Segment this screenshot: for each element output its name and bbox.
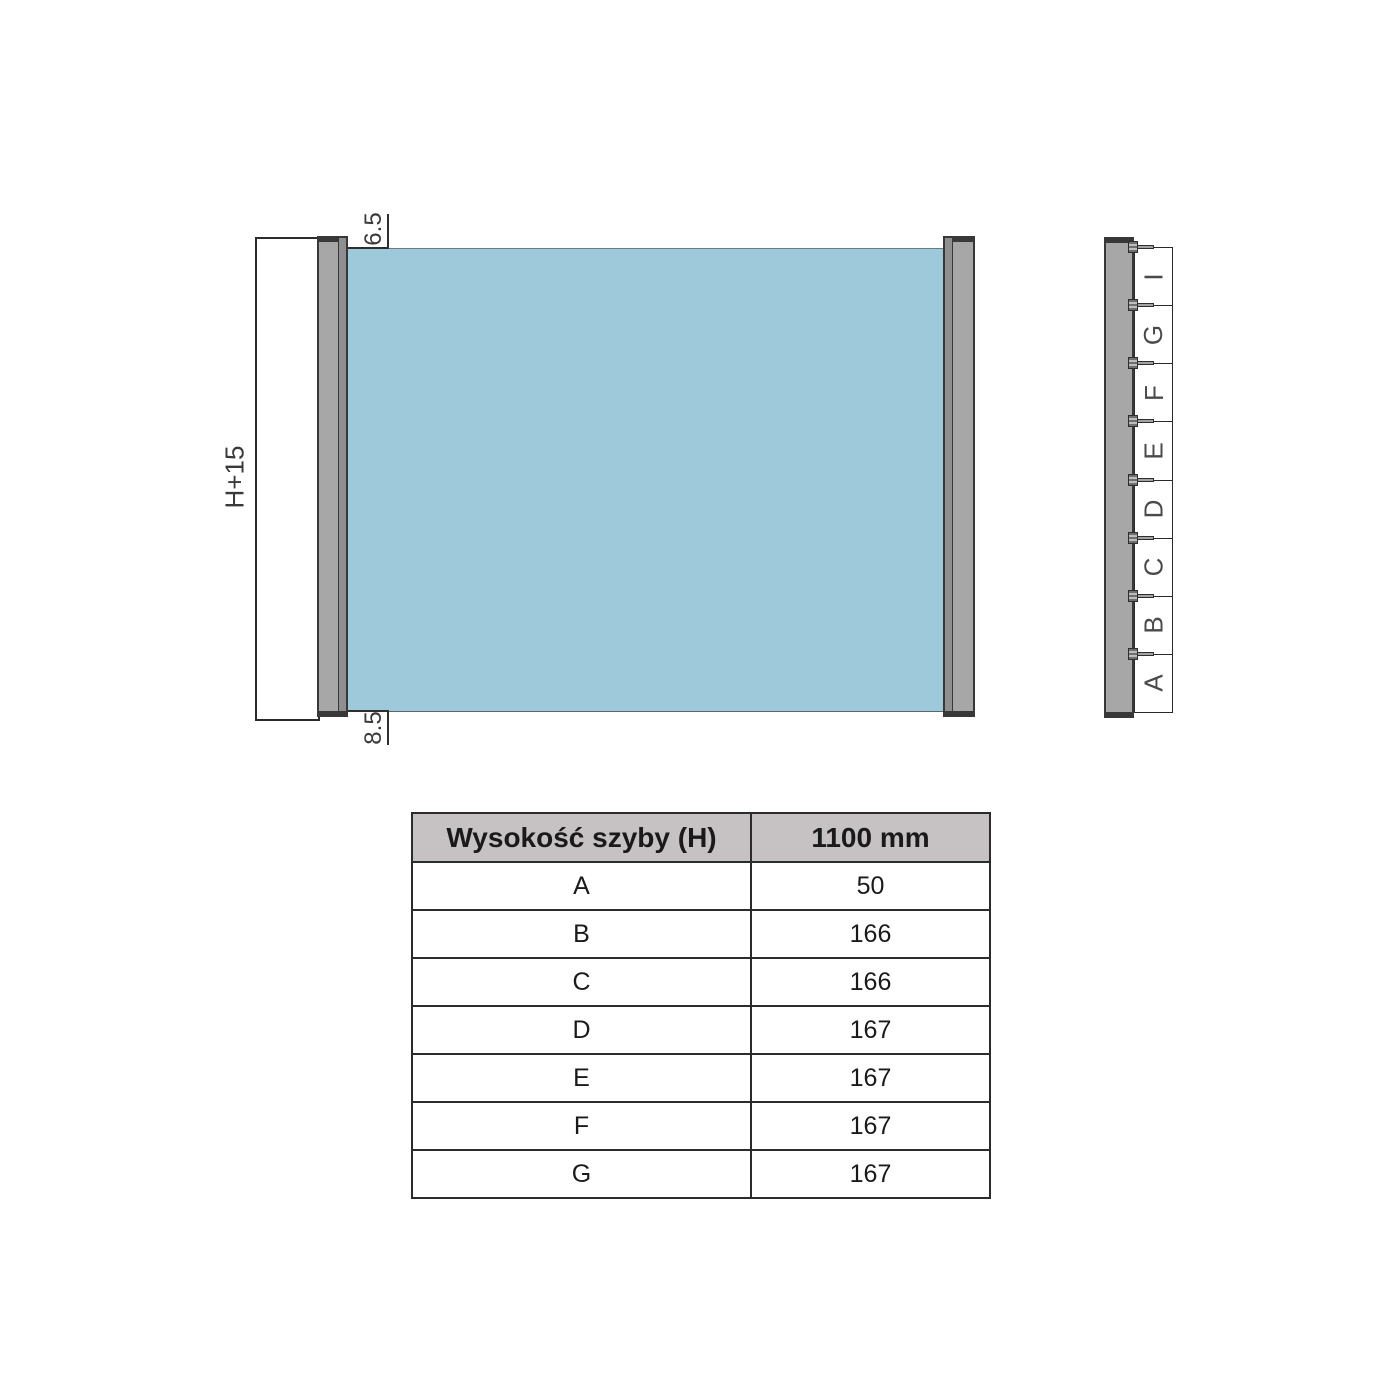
segment-label-cell: A (412, 862, 751, 910)
side-segment: B (1135, 597, 1172, 655)
table-row: A 50 (412, 862, 990, 910)
table-row: C 166 (412, 958, 990, 1006)
screw-icon (1128, 590, 1158, 602)
side-segment: A (1135, 655, 1172, 712)
segment-label-cell: B (412, 910, 751, 958)
side-segment: E (1135, 422, 1172, 480)
table-header-value: 1100 mm (751, 813, 990, 862)
side-segment: I (1135, 248, 1172, 306)
segment-label: E (1141, 442, 1167, 459)
segment-label: G (1140, 325, 1166, 345)
table-row: E 167 (412, 1054, 990, 1102)
profile-gasket-strip (945, 238, 953, 715)
screw-icon (1128, 648, 1158, 660)
side-segment: C (1135, 539, 1172, 597)
screw-icon (1128, 474, 1158, 486)
top-gap-dimension-label: 6.5 (360, 212, 388, 245)
segment-value-cell: 167 (751, 1150, 990, 1198)
screw-icon (1128, 357, 1158, 369)
screw-icon (1128, 299, 1158, 311)
screw-icon (1128, 415, 1158, 427)
top-gap-dimension-line (348, 247, 389, 249)
segment-label: I (1140, 273, 1166, 280)
table-row: G 167 (412, 1150, 990, 1198)
table-row: F 167 (412, 1102, 990, 1150)
segment-value-cell: 166 (751, 958, 990, 1006)
segment-label-cell: C (412, 958, 751, 1006)
segment-label-cell: F (412, 1102, 751, 1150)
segment-label-cell: E (412, 1054, 751, 1102)
segment-label: A (1141, 675, 1167, 692)
table-header-glass-height: Wysokość szyby (H) (412, 813, 751, 862)
screw-icon (1128, 532, 1158, 544)
table-row: D 167 (412, 1006, 990, 1054)
segment-label: B (1141, 617, 1167, 634)
segment-label-cell: D (412, 1006, 751, 1054)
side-segment: D (1135, 481, 1172, 539)
segment-label: C (1141, 558, 1167, 577)
bottom-gap-dimension-label: 8.5 (360, 711, 388, 744)
height-dimension-label: H+15 (220, 446, 251, 509)
side-segment: G (1135, 306, 1172, 364)
segment-label: F (1140, 385, 1166, 401)
glass-pane (346, 248, 945, 712)
table-header-row: Wysokość szyby (H) 1100 mm (412, 813, 990, 862)
left-profile-bar (317, 236, 348, 717)
profile-bottom-cap (317, 711, 348, 717)
profile-gasket-strip (338, 238, 346, 715)
height-dimension-bracket (255, 237, 320, 721)
technical-diagram-canvas: H+15 6.5 8.5 I G F E (0, 0, 1400, 1400)
segment-value-cell: 167 (751, 1054, 990, 1102)
profile-bottom-cap (943, 711, 975, 717)
dimensions-table: Wysokość szyby (H) 1100 mm A 50 B 166 C … (411, 812, 991, 1199)
segment-label: D (1141, 500, 1167, 519)
segment-value-cell: 167 (751, 1006, 990, 1054)
segment-value-cell: 167 (751, 1102, 990, 1150)
screw-icon (1128, 241, 1158, 253)
segment-value-cell: 166 (751, 910, 990, 958)
table-row: B 166 (412, 910, 990, 958)
right-profile-bar (943, 236, 975, 717)
segment-label-cell: G (412, 1150, 751, 1198)
segment-value-cell: 50 (751, 862, 990, 910)
side-segment: F (1135, 364, 1172, 422)
profile-bottom-cap (1104, 712, 1134, 718)
